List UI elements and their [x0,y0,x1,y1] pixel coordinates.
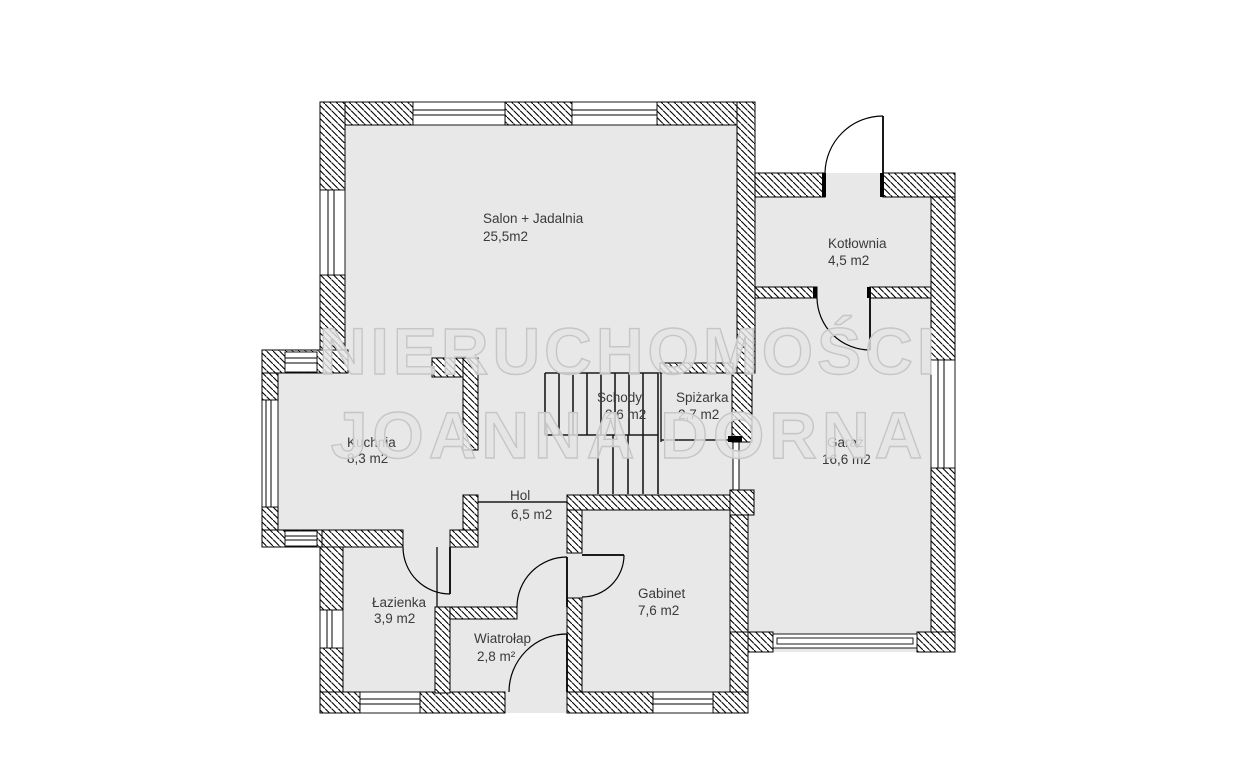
window-bay-top [285,352,317,372]
room-area-salon: 25,5m2 [483,229,528,244]
watermark-line1: NIERUCHOMOŚCI [319,314,939,388]
watermark-line2: JOANNA DORNA [331,398,928,472]
window-bay-bottom [285,531,317,546]
window-top-left [413,102,505,125]
room-area-gabinet: 7,6 m2 [638,603,679,618]
floor-plan-page: Salon + Jadalnia 25,5m2 Kotłownia 4,5 m2… [0,0,1247,778]
window-salon-left [320,190,345,275]
garage-vehicle-door [773,634,917,648]
room-area-kotlownia: 4,5 m2 [828,253,869,268]
room-area-hol: 6,5 m2 [511,507,552,522]
floor-plan-drawing: Salon + Jadalnia 25,5m2 Kotłownia 4,5 m2… [0,0,1247,778]
room-area-lazienka: 3,9 m2 [374,611,415,626]
room-label-wiatrolap: Wiatrołap [474,631,531,646]
door-kotlownia-exterior [825,116,883,173]
room-area-wiatrolap: 2,8 m² [477,649,516,664]
window-top-right [572,102,657,125]
window-bay-left [262,400,278,507]
room-label-lazienka: Łazienka [372,595,427,610]
room-label-kotlownia: Kotłownia [828,236,887,251]
room-label-salon: Salon + Jadalnia [483,211,584,226]
window-bottom-lazienka [360,692,420,713]
room-label-gabinet: Gabinet [638,586,686,601]
window-bottom-gabinet [653,692,713,713]
window-lazienka-left [320,610,343,648]
room-label-hol: Hol [510,488,530,503]
